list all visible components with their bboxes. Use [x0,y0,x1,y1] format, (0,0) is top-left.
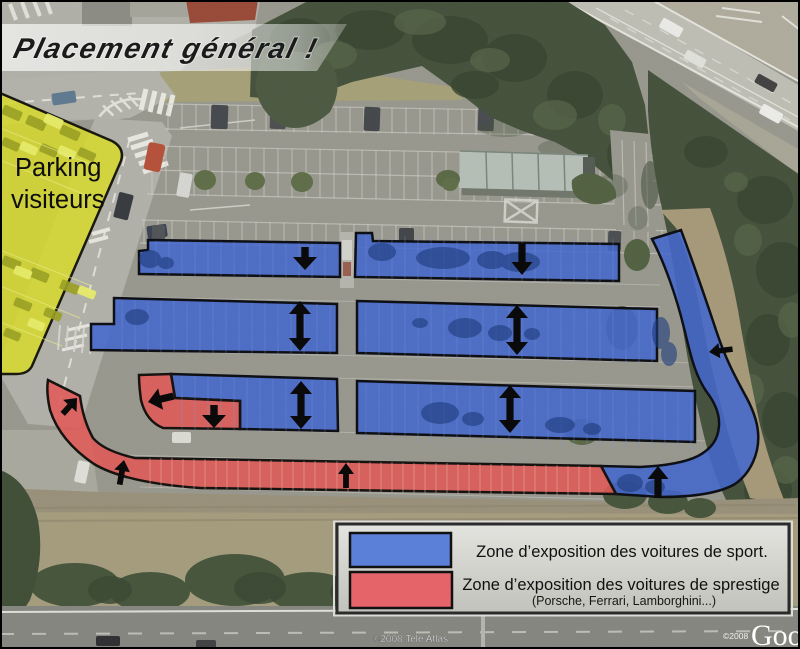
svg-text:(Porsche, Ferrari, Lamborghini: (Porsche, Ferrari, Lamborghini...) [532,594,716,608]
svg-text:Goo: Goo [751,619,800,649]
svg-text:Placement général !: Placement général ! [10,33,321,65]
svg-text:visiteurs: visiteurs [11,186,105,214]
svg-text:©2008 Tele Atlas: ©2008 Tele Atlas [373,634,448,645]
svg-text:Zone d’exposition des voitures: Zone d’exposition des voitures de sport. [476,543,768,561]
svg-text:©2008: ©2008 [723,631,748,641]
svg-text:Zone d’exposition des voitures: Zone d’exposition des voitures de sprest… [462,576,779,594]
svg-text:Parking: Parking [15,154,101,182]
